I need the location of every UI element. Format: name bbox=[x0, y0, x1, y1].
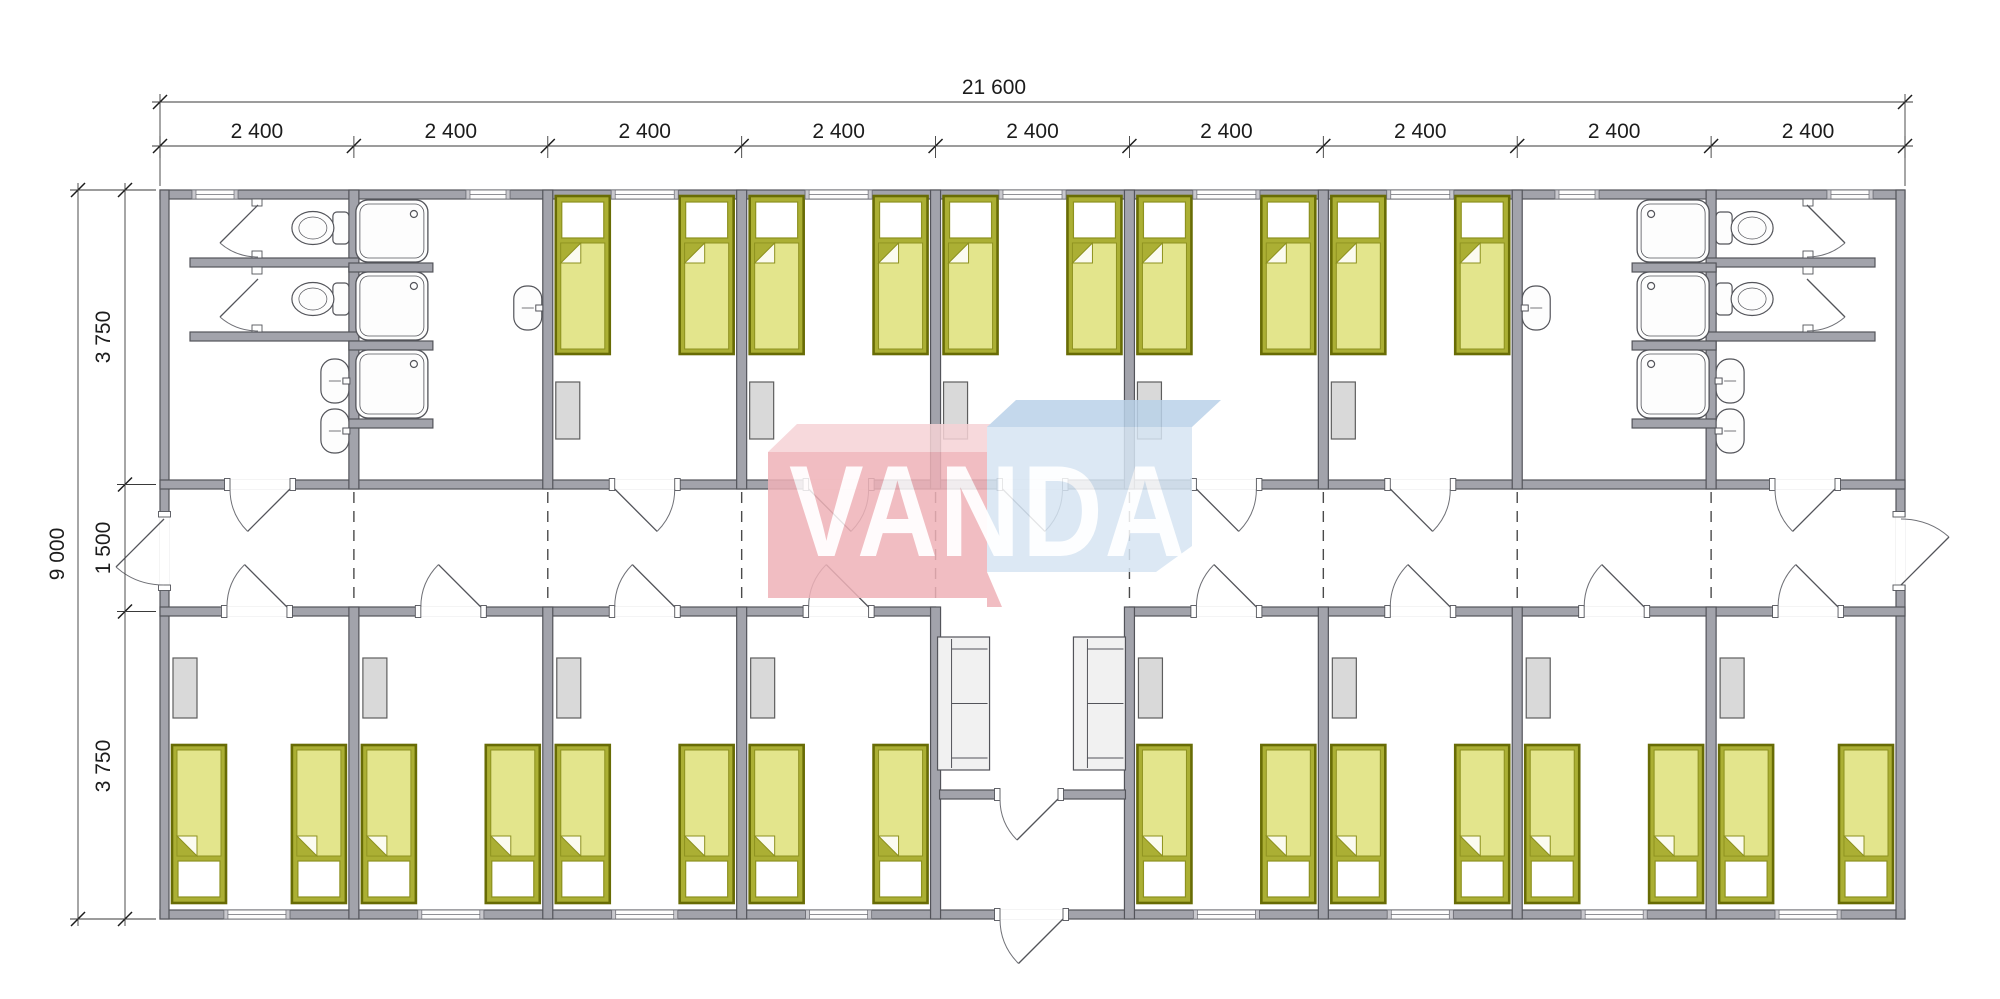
wash-basin bbox=[1715, 409, 1744, 453]
toilet bbox=[292, 212, 349, 245]
window bbox=[806, 910, 872, 919]
dimension-label: 2 400 bbox=[1782, 120, 1835, 143]
wardrobe bbox=[556, 382, 580, 439]
window bbox=[224, 910, 290, 919]
door-swing-arc bbox=[1000, 919, 1019, 964]
wardrobe bbox=[173, 658, 197, 718]
door-opening bbox=[615, 606, 675, 616]
window bbox=[466, 190, 510, 199]
door-swing-arc bbox=[615, 565, 633, 607]
door-swing-arc bbox=[116, 567, 164, 585]
window-jamb bbox=[506, 190, 510, 199]
wall-jamb bbox=[159, 585, 171, 591]
single-bed bbox=[1455, 196, 1509, 354]
door-opening bbox=[809, 606, 869, 616]
module-wall-top-row bbox=[737, 190, 747, 489]
single-bed bbox=[874, 196, 928, 354]
shower-tray bbox=[356, 272, 428, 340]
wall-jamb bbox=[1644, 606, 1650, 618]
wall-jamb bbox=[415, 606, 421, 618]
dimension-label: 9 000 bbox=[46, 528, 69, 581]
shower-outline bbox=[356, 200, 428, 262]
wall-jamb bbox=[1256, 606, 1262, 618]
basin-tap bbox=[1521, 305, 1528, 311]
wall-jamb bbox=[609, 606, 615, 618]
door-swing-arc bbox=[1390, 565, 1408, 607]
single-bed bbox=[750, 196, 804, 354]
door-leaf bbox=[1796, 565, 1838, 607]
dimension-label: 2 400 bbox=[812, 120, 865, 143]
toilet bbox=[1716, 283, 1773, 316]
door-opening bbox=[615, 479, 675, 489]
door-swing-arc bbox=[1239, 489, 1257, 531]
window-jamb bbox=[1581, 910, 1585, 919]
bed-pillow bbox=[756, 202, 798, 238]
wall-jamb bbox=[252, 199, 262, 206]
dimension-label: 2 400 bbox=[618, 120, 671, 143]
wall-jamb bbox=[609, 479, 615, 491]
window bbox=[612, 910, 678, 919]
dimension-label: 2 400 bbox=[1588, 120, 1641, 143]
wall-jamb bbox=[1773, 606, 1779, 618]
door-opening bbox=[1390, 606, 1450, 616]
window bbox=[1193, 910, 1259, 919]
module-wall-bottom-row bbox=[543, 607, 553, 919]
door-swing-arc bbox=[227, 565, 245, 607]
door-leaf bbox=[1214, 565, 1256, 607]
single-bed bbox=[1719, 745, 1773, 903]
bed-pillow bbox=[1073, 202, 1115, 238]
dimension-label: 2 400 bbox=[231, 120, 284, 143]
door-leaf bbox=[632, 565, 674, 607]
window-jamb bbox=[286, 910, 290, 919]
shower-outline bbox=[356, 272, 428, 340]
door-leaf bbox=[1807, 279, 1845, 317]
dimension-label: 3 750 bbox=[92, 311, 115, 364]
wall-jamb bbox=[1803, 267, 1813, 274]
shower-divider bbox=[349, 341, 433, 350]
door-opening bbox=[421, 606, 481, 616]
wash-basin bbox=[1521, 286, 1550, 330]
shower-tray bbox=[356, 200, 428, 262]
bed-pillow bbox=[562, 861, 604, 897]
module-wall-top-row bbox=[1318, 190, 1328, 489]
door-swing-arc bbox=[1433, 489, 1451, 531]
dimension-label: 2 400 bbox=[1200, 120, 1253, 143]
window-jamb bbox=[1256, 190, 1260, 199]
single-bed bbox=[1261, 196, 1315, 354]
window-jamb bbox=[1450, 190, 1454, 199]
window bbox=[1387, 910, 1453, 919]
door-opening bbox=[230, 479, 290, 489]
window-jamb bbox=[1062, 190, 1066, 199]
window bbox=[192, 190, 238, 199]
wall-jamb bbox=[1893, 512, 1905, 518]
wall-jamb bbox=[1838, 606, 1844, 618]
bed-pillow bbox=[1337, 861, 1379, 897]
bed-pillow bbox=[1845, 861, 1887, 897]
module-wall-bottom-row bbox=[1318, 607, 1328, 919]
window bbox=[1555, 190, 1599, 199]
window-jamb bbox=[868, 190, 872, 199]
door-leaf bbox=[1019, 919, 1064, 964]
window-jamb bbox=[224, 910, 228, 919]
door-swing-arc bbox=[1000, 799, 1017, 840]
door-leaf bbox=[1793, 489, 1835, 531]
module-wall-top-row bbox=[1512, 190, 1522, 489]
window-jamb bbox=[1595, 190, 1599, 199]
toilet-bowl bbox=[292, 283, 334, 316]
single-bed bbox=[1331, 196, 1385, 354]
door-swing-arc bbox=[1775, 489, 1793, 531]
watermark-logo: VANDA bbox=[768, 400, 1221, 607]
bed-pillow bbox=[1267, 861, 1309, 897]
bed-pillow bbox=[1337, 202, 1379, 238]
dimension-label: 21 600 bbox=[962, 76, 1026, 99]
wardrobe bbox=[750, 382, 774, 439]
single-bed bbox=[556, 196, 610, 354]
window-jamb bbox=[674, 190, 678, 199]
door-swing-arc bbox=[421, 565, 439, 607]
single-bed bbox=[172, 745, 226, 903]
logo-blue-top-face bbox=[987, 400, 1221, 427]
shower-tray bbox=[1637, 350, 1709, 418]
door-leaf bbox=[245, 565, 287, 607]
wardrobe bbox=[1138, 658, 1162, 718]
door-swing-arc bbox=[1584, 565, 1602, 607]
window-jamb bbox=[1827, 190, 1831, 199]
door-swing-arc bbox=[230, 489, 248, 531]
door-leaf bbox=[1390, 489, 1432, 531]
wall-jamb bbox=[225, 479, 231, 491]
stall-stubs bbox=[252, 199, 1813, 332]
window bbox=[1775, 910, 1841, 919]
toilet bbox=[1716, 212, 1773, 245]
bed-pillow bbox=[880, 202, 922, 238]
window-jamb bbox=[1775, 910, 1779, 919]
bed-pillow bbox=[1143, 861, 1185, 897]
wc-stall-wall bbox=[1706, 258, 1875, 267]
window bbox=[1193, 190, 1260, 199]
window-jamb bbox=[806, 910, 810, 919]
single-bed bbox=[680, 745, 734, 903]
door-opening bbox=[1895, 517, 1905, 585]
dimension-label: 3 750 bbox=[92, 740, 115, 793]
window bbox=[999, 190, 1066, 199]
wash-basin bbox=[321, 359, 350, 403]
door-opening bbox=[1196, 606, 1256, 616]
window-jamb bbox=[1837, 910, 1841, 919]
shower-divider bbox=[349, 419, 433, 428]
vestibule-wall bbox=[1058, 790, 1125, 799]
bed-pillow bbox=[1725, 861, 1767, 897]
shower-divider bbox=[1632, 419, 1716, 428]
shower-outline bbox=[1637, 272, 1709, 340]
window-jamb bbox=[674, 910, 678, 919]
floor-plan-drawing: 21 6002 4002 4002 4002 4002 4002 4002 40… bbox=[0, 0, 2000, 999]
shower-divider bbox=[349, 263, 433, 272]
module-wall-bottom-row bbox=[737, 607, 747, 919]
single-bed bbox=[1067, 196, 1121, 354]
wc-stall-wall bbox=[1706, 332, 1875, 341]
window-jamb bbox=[868, 910, 872, 919]
wall-jamb bbox=[1450, 479, 1456, 491]
module-wall-bottom-row bbox=[349, 607, 359, 919]
window-jamb bbox=[1193, 910, 1197, 919]
door-opening bbox=[1584, 606, 1644, 616]
shower-outline bbox=[1637, 200, 1709, 262]
bed-pillow bbox=[1461, 861, 1503, 897]
window-jamb bbox=[192, 190, 196, 199]
door-leaf bbox=[1017, 799, 1058, 840]
door-swing-arc bbox=[1196, 565, 1214, 607]
dimension-label: 1 500 bbox=[92, 522, 115, 575]
bed-pillow bbox=[950, 202, 992, 238]
dimension-label: 2 400 bbox=[425, 120, 478, 143]
window bbox=[1581, 910, 1647, 919]
door-leaf bbox=[615, 489, 657, 531]
door-leaf bbox=[438, 565, 480, 607]
wall-jamb bbox=[1256, 479, 1262, 491]
wc-stall-wall bbox=[190, 258, 359, 267]
wall-jamb bbox=[1803, 199, 1813, 206]
door-leaf bbox=[116, 519, 164, 567]
door-leaf bbox=[1196, 489, 1238, 531]
wash-basin bbox=[514, 286, 543, 330]
single-bed bbox=[1137, 196, 1191, 354]
wall-jamb bbox=[995, 789, 1001, 801]
single-bed bbox=[1649, 745, 1703, 903]
door-leaf bbox=[1807, 205, 1845, 243]
wall-jamb bbox=[1450, 606, 1456, 618]
toilet-bowl bbox=[1731, 212, 1773, 245]
bed-pillow bbox=[1267, 202, 1309, 238]
door-leaf bbox=[220, 205, 258, 243]
wall-jamb bbox=[995, 909, 1001, 921]
bed-pillow bbox=[686, 202, 728, 238]
window-jamb bbox=[480, 910, 484, 919]
wall-jamb bbox=[803, 606, 809, 618]
wc-stall-wall bbox=[190, 332, 359, 341]
wash-basin bbox=[321, 409, 350, 453]
wall-jamb bbox=[869, 606, 875, 618]
wardrobe bbox=[751, 658, 775, 718]
single-bed bbox=[1137, 745, 1191, 903]
door-opening bbox=[159, 517, 169, 585]
single-bed bbox=[292, 745, 346, 903]
bed-pillow bbox=[178, 861, 220, 897]
bed-pillow bbox=[1655, 861, 1697, 897]
sofa bbox=[938, 637, 990, 770]
toilet-bowl bbox=[1731, 283, 1773, 316]
door-leaf bbox=[220, 279, 258, 317]
floor-plan-page: 21 6002 4002 4002 4002 4002 4002 4002 40… bbox=[0, 0, 2000, 999]
door-opening bbox=[1775, 479, 1835, 489]
single-bed bbox=[1839, 745, 1893, 903]
bed-pillow bbox=[562, 202, 604, 238]
wall-jamb bbox=[675, 606, 681, 618]
window-jamb bbox=[466, 190, 470, 199]
wardrobe bbox=[1331, 382, 1355, 439]
toilet bbox=[292, 283, 349, 316]
window-jamb bbox=[1449, 910, 1453, 919]
toilet-tank bbox=[333, 283, 349, 315]
shower-tray bbox=[1637, 272, 1709, 340]
single-bed bbox=[680, 196, 734, 354]
basin-tap bbox=[343, 378, 350, 384]
window-jamb bbox=[612, 910, 616, 919]
bed-pillow bbox=[368, 861, 410, 897]
bed-pillow bbox=[756, 861, 798, 897]
window bbox=[805, 190, 872, 199]
single-bed bbox=[556, 745, 610, 903]
single-bed bbox=[486, 745, 540, 903]
window bbox=[1827, 190, 1873, 199]
wall-jamb bbox=[159, 512, 171, 518]
shower-outline bbox=[1637, 350, 1709, 418]
wall-jamb bbox=[1063, 909, 1069, 921]
vestibule-wall bbox=[940, 790, 998, 799]
single-bed bbox=[1455, 745, 1509, 903]
toilet-bowl bbox=[292, 212, 334, 245]
bed-pillow bbox=[1143, 202, 1185, 238]
wall-jamb bbox=[221, 606, 227, 618]
single-bed bbox=[362, 745, 416, 903]
wall-jamb bbox=[1058, 789, 1064, 801]
single-bed bbox=[874, 745, 928, 903]
door-swing-arc bbox=[1901, 519, 1949, 537]
window bbox=[418, 910, 484, 919]
single-bed bbox=[750, 745, 804, 903]
wardrobe bbox=[1526, 658, 1550, 718]
wardrobe bbox=[1720, 658, 1744, 718]
toilet-tank bbox=[1716, 212, 1732, 244]
window-jamb bbox=[1643, 910, 1647, 919]
shower-tray bbox=[356, 350, 428, 418]
shower-outline bbox=[356, 350, 428, 418]
single-bed bbox=[944, 196, 998, 354]
wall-jamb bbox=[1893, 585, 1905, 591]
door-leaf bbox=[1408, 565, 1450, 607]
shower-divider bbox=[1632, 263, 1716, 272]
window-jamb bbox=[234, 190, 238, 199]
wall-jamb bbox=[1770, 479, 1776, 491]
door-leaf bbox=[1602, 565, 1644, 607]
single-bed bbox=[1331, 745, 1385, 903]
wall-jamb bbox=[1385, 479, 1391, 491]
shower-tray bbox=[1637, 200, 1709, 262]
watermark-text: VANDA bbox=[789, 438, 1187, 584]
dimension-label: 2 400 bbox=[1006, 120, 1059, 143]
door-leaf bbox=[1901, 537, 1949, 585]
wash-basin bbox=[1715, 359, 1744, 403]
basin-tap bbox=[1715, 428, 1722, 434]
bed-pillow bbox=[1461, 202, 1503, 238]
wall-jamb bbox=[481, 606, 487, 618]
window-jamb bbox=[1193, 190, 1197, 199]
window bbox=[1387, 190, 1454, 199]
bed-pillow bbox=[298, 861, 340, 897]
wall-jamb bbox=[1579, 606, 1585, 618]
bed-pillow bbox=[1531, 861, 1573, 897]
door-opening bbox=[1778, 606, 1838, 616]
wall-jamb bbox=[1835, 479, 1841, 491]
door-opening bbox=[1196, 479, 1256, 489]
wall-jamb bbox=[252, 267, 262, 274]
basin-tap bbox=[536, 305, 543, 311]
window-jamb bbox=[999, 190, 1003, 199]
toilet-tank bbox=[1716, 283, 1732, 315]
door-opening bbox=[1000, 909, 1063, 919]
wardrobe bbox=[1332, 658, 1356, 718]
door-opening bbox=[1390, 479, 1450, 489]
basin-tap bbox=[1715, 378, 1722, 384]
window-jamb bbox=[805, 190, 809, 199]
window bbox=[611, 190, 678, 199]
basin-tap bbox=[343, 428, 350, 434]
sofa bbox=[1073, 637, 1125, 770]
door-swing-arc bbox=[1778, 565, 1796, 607]
door-opening bbox=[227, 606, 287, 616]
door-swing-arc bbox=[657, 489, 675, 531]
bed-pillow bbox=[492, 861, 534, 897]
module-wall-bottom-row bbox=[1706, 607, 1716, 919]
window-jamb bbox=[1869, 190, 1873, 199]
window-jamb bbox=[1387, 910, 1391, 919]
door-leaf bbox=[248, 489, 290, 531]
wardrobe bbox=[363, 658, 387, 718]
window-jamb bbox=[1255, 910, 1259, 919]
window-jamb bbox=[1555, 190, 1559, 199]
single-bed bbox=[1261, 745, 1315, 903]
wall-jamb bbox=[675, 479, 681, 491]
bed-pillow bbox=[880, 861, 922, 897]
wardrobe bbox=[557, 658, 581, 718]
window-jamb bbox=[1387, 190, 1391, 199]
module-wall-bottom-row bbox=[1512, 607, 1522, 919]
wall-jamb bbox=[1385, 606, 1391, 618]
wall-jamb bbox=[1191, 606, 1197, 618]
dimension-label: 2 400 bbox=[1394, 120, 1447, 143]
toilet-tank bbox=[333, 212, 349, 244]
module-wall-top-row bbox=[543, 190, 553, 489]
door-opening bbox=[1000, 789, 1058, 799]
shower-divider bbox=[1632, 341, 1716, 350]
bed-pillow bbox=[686, 861, 728, 897]
single-bed bbox=[1525, 745, 1579, 903]
window-jamb bbox=[611, 190, 615, 199]
wall-jamb bbox=[290, 479, 296, 491]
wall-jamb bbox=[287, 606, 293, 618]
window-jamb bbox=[418, 910, 422, 919]
